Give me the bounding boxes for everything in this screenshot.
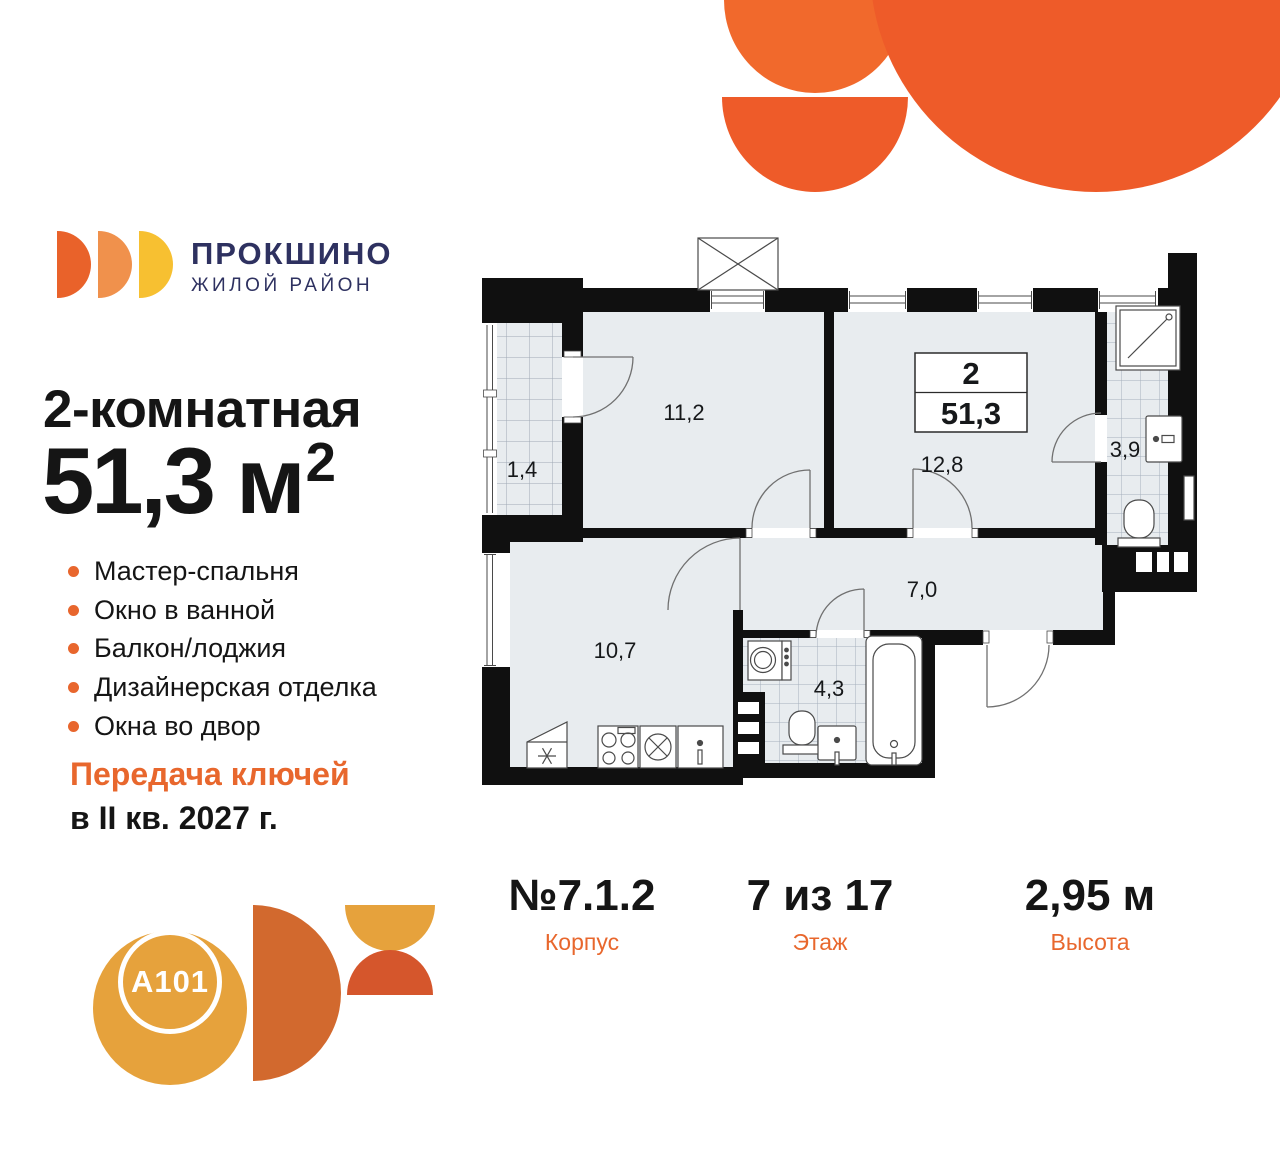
developer-logo: A101 [93,905,353,1085]
flyer-canvas: { "brand": { "name": "ПРОКШИНО", "taglin… [0,0,1280,1160]
feature-label: Мастер-спальня [94,556,299,587]
plan-info-box: 2 51,3 [915,353,1027,432]
handover-date: в II кв. 2027 г. [70,801,278,836]
room-label-balcony: 1,4 [507,457,538,482]
towel-rail-icon [1184,476,1194,520]
feature-label: Дизайнерская отделка [94,672,377,703]
info-box-area: 51,3 [941,396,1001,431]
info-box-rooms: 2 [962,356,979,391]
feature-item: Балкон/лоджия [68,630,377,669]
room-label-living: 12,8 [921,452,964,477]
feature-label: Балкон/лоджия [94,633,286,664]
room-label-bathroom-big: 4,3 [814,676,845,701]
feature-item: Окна во двор [68,707,377,746]
brand-halfcircle-icon [57,231,91,298]
door-entrance [987,645,1049,707]
shower-icon [1116,306,1180,370]
bathtub-icon [866,636,922,765]
a101-halfdown-icon [345,905,435,951]
a101-halfcircle-icon [253,905,341,1081]
ceiling-height: 2,95 м [980,874,1200,918]
feature-item: Мастер-спальня [68,552,377,591]
room-label-kitchen: 10,7 [594,638,637,663]
kitchen-sink-icon [640,726,676,768]
decor-big-circle [870,0,1280,192]
feature-item: Дизайнерская отделка [68,668,377,707]
area-value: 51,3 м2 [42,434,336,528]
building-number: №7.1.2 [472,874,692,918]
handover-title: Передача ключей [70,757,350,792]
feature-label: Окно в ванной [94,595,275,626]
area-number: 51,3 м [42,428,303,533]
sink-icon [1146,416,1182,462]
floor-plan: 2 51,3 1,4 11,2 12,8 3,9 7,0 10,7 4,3 [480,230,1200,855]
bullet-dot-icon [68,682,79,693]
footer-floor: 7 из 17 Этаж [710,874,930,954]
a101-halfup-icon [347,950,433,995]
bullet-dot-icon [68,643,79,654]
area-superscript: 2 [306,432,336,493]
room-label-bedroom: 11,2 [663,400,704,425]
bullet-dot-icon [68,721,79,732]
kitchen-counter-icon [678,726,723,768]
vent-shaft-icon [698,238,778,290]
brand-text: ПРОКШИНО ЖИЛОЙ РАЙОН [191,231,393,298]
room-label-hallway: 7,0 [907,577,938,602]
floor-label: Этаж [710,931,930,954]
a101-ring: A101 [118,930,222,1034]
brand-name: ПРОКШИНО [191,238,393,269]
bullet-dot-icon [68,605,79,616]
building-label: Корпус [472,931,692,954]
brand-tagline: ЖИЛОЙ РАЙОН [191,276,393,295]
feature-list: Мастер-спальня Окно в ванной Балкон/лодж… [68,552,377,746]
a101-text: A101 [131,964,209,1000]
brand-halfcircle-icon [139,231,173,298]
footer-building: №7.1.2 Корпус [472,874,692,954]
feature-item: Окно в ванной [68,591,377,630]
floor-number: 7 из 17 [710,874,930,918]
room-label-bathroom-small: 3,9 [1110,437,1141,462]
decor-halfcircle-bottom [722,97,908,192]
height-label: Высота [980,931,1200,954]
bullet-dot-icon [68,566,79,577]
footer-height: 2,95 м Высота [980,874,1200,954]
brand-logo-marks [57,231,173,298]
sink-icon [818,726,856,765]
washing-machine-icon [748,641,791,680]
feature-label: Окна во двор [94,711,261,742]
brand-logo: ПРОКШИНО ЖИЛОЙ РАЙОН [57,231,393,298]
stove-icon [598,726,638,768]
brand-halfcircle-icon [98,231,132,298]
